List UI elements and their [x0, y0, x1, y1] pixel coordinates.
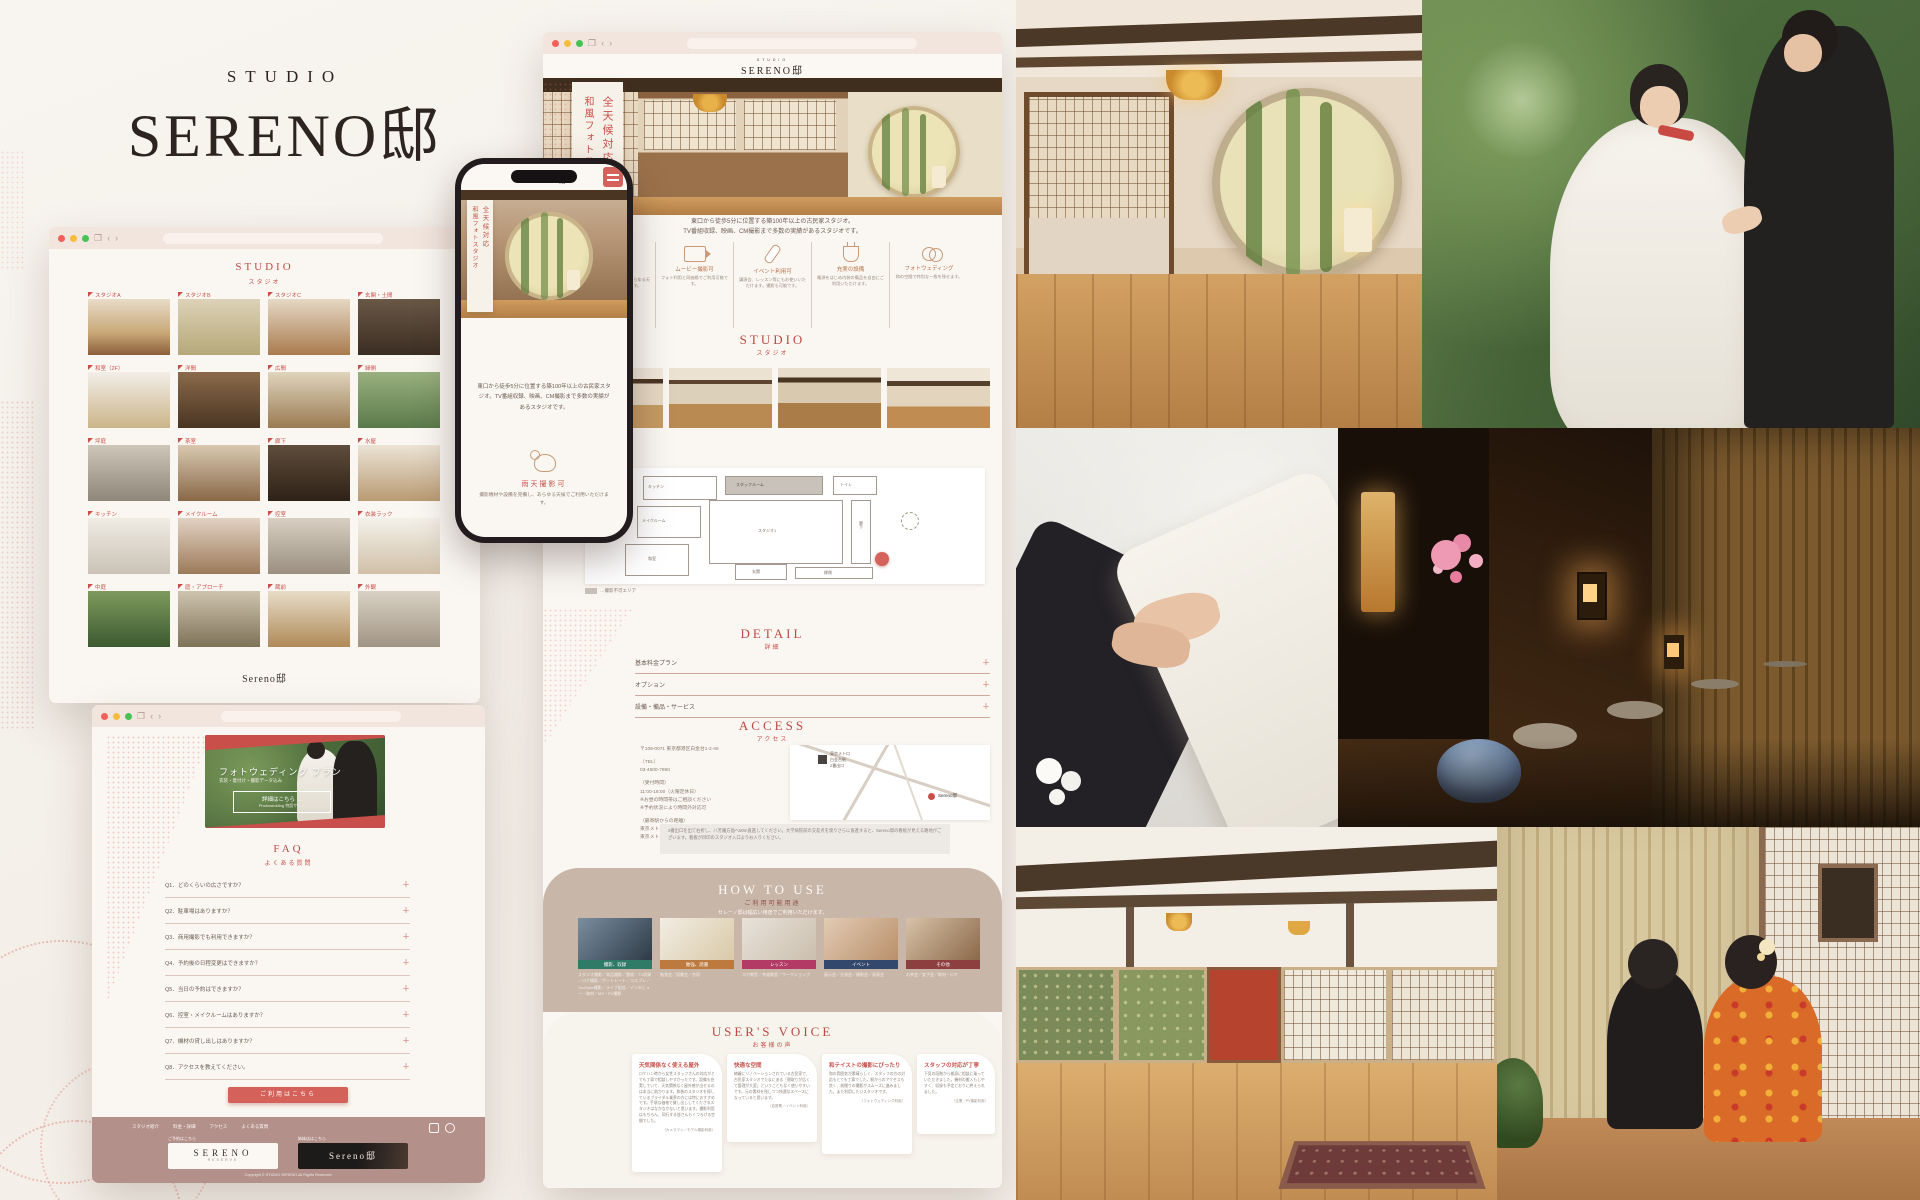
stone-lantern: [567, 270, 580, 290]
bamboo-stalk: [902, 108, 909, 196]
gallery-thumbnail[interactable]: [178, 299, 260, 355]
faq-item[interactable]: Q2．駐車場はありますか？＋: [165, 898, 410, 924]
bride-white-kimono: [1550, 118, 1768, 428]
voice-card-text: 綺麗にリノベーションされている古民家で、古民家スタジオでたまにある「間取りが広く…: [734, 1072, 810, 1101]
brand-logo-name: SERENO邸: [75, 87, 495, 174]
access-address: 〒108-0071 東京都港区白金台1-2-46: [640, 746, 785, 754]
faq-browser-chrome: ❐ ‹ ›: [92, 705, 485, 727]
gallery-thumbnail[interactable]: [268, 372, 350, 428]
studio-photo[interactable]: [669, 368, 772, 428]
use-card-photo: [906, 918, 980, 960]
studio-photo[interactable]: [778, 368, 881, 428]
gallery-thumbnail[interactable]: [178, 518, 260, 574]
faq-question: Q8．アクセスを教えてください。: [165, 1063, 249, 1071]
faq-item[interactable]: Q1．どのくらいの広さですか？＋: [165, 872, 410, 898]
how-to-use-subtitle: ご利用可能用途: [543, 898, 1002, 907]
use-card-label: レッスン: [742, 960, 816, 969]
thumb-caption: 茶室: [178, 437, 260, 445]
gallery-thumbnail[interactable]: [88, 518, 170, 574]
gallery-thumbnail[interactable]: [88, 445, 170, 501]
feature-equipment: 充実の設備 電源をはじめ内装の備品を自由にご利用いただけます。: [812, 242, 890, 328]
wall-niche: [1818, 864, 1878, 942]
site-header: STUDIO SERENO邸: [543, 54, 1002, 78]
thumb-caption: 蔵前: [268, 583, 350, 591]
bamboo-stalk: [557, 218, 563, 298]
gallery-thumbnail[interactable]: [88, 372, 170, 428]
use-card-items: スタジオ撮影／商品撮影／番組・TV収録／ロケ撮影／ポートレート／コスプレ／You…: [578, 972, 652, 998]
use-card[interactable]: イベント 展示会／交流会／撮影会／発表会: [824, 918, 898, 998]
banner-button-sub: Photowedding 特設サイト: [259, 803, 305, 809]
voice-card-title: 和テイストの撮影にぴったり: [829, 1061, 905, 1069]
footer-banner2-label: 姉妹店はこちら: [298, 1136, 326, 1142]
groom-head: [1628, 939, 1678, 989]
access-map[interactable]: 東京メトロ 白金台駅 2番出口 Sereno邸: [790, 745, 990, 820]
how-to-use-section: HOW TO USE ご利用可能用途 セレーノ邸は幅広い用途でご利用いただけます…: [543, 868, 1002, 1012]
site-header-logo[interactable]: SERENO邸: [543, 62, 1002, 77]
movie-camera-icon: [684, 246, 706, 262]
footer-link[interactable]: アクセス: [210, 1124, 228, 1130]
faq-item[interactable]: Q7．機材の貸し出しはありますか？＋: [165, 1028, 410, 1054]
gallery-thumbnail[interactable]: [178, 445, 260, 501]
access-note-box: 2番出口を出て右折し、八芳園方面へ50m直進してください。大学病院前の交差点を渡…: [660, 824, 950, 854]
decor-dot-strip: [0, 400, 34, 730]
feature-desc: 講演会、レッスン等にもお使いいただけます。撮影も可能です。: [738, 277, 807, 290]
hero-doors: [638, 92, 848, 202]
wood-floor: [1016, 274, 1422, 428]
use-card-items: お茶会／女子会／取材・ロケ: [906, 972, 980, 978]
banner-detail-button[interactable]: 詳細はこちら → Photowedding 特設サイト: [233, 791, 331, 813]
use-card-label: その他: [906, 960, 980, 969]
feature-label: イベント利用可: [738, 267, 807, 275]
access-hours-note2: ※予約状況により時間外対応可: [640, 805, 785, 813]
ceiling-beam: [1016, 15, 1422, 48]
bamboo-stalk: [541, 212, 548, 300]
phone-circle-window: [505, 212, 593, 300]
footer-link[interactable]: よくある質問: [241, 1124, 268, 1130]
sun-icon: [530, 450, 540, 460]
instagram-icon[interactable]: [429, 1123, 439, 1133]
thumb-caption: 水屋: [358, 437, 440, 445]
use-card-photo: [742, 918, 816, 960]
traffic-light-minimize[interactable]: [113, 713, 120, 720]
ceiling-beam: [1016, 50, 1422, 68]
use-cards-row: 撮影、収録 スタジオ撮影／商品撮影／番組・TV収録／ロケ撮影／ポートレート／コス…: [578, 918, 980, 998]
hero-copy-line1: 全天候対応: [599, 96, 615, 166]
expand-icon: ＋: [402, 1061, 410, 1072]
floorplan: キッチン スタッフルーム トイレ メイクルーム スタジオ1 和室 廊下 玄関 縁…: [585, 468, 985, 584]
expand-icon: ＋: [402, 983, 410, 994]
detail-accordion: 基本料金プラン＋ オプション＋ 設備・備品・サービス＋: [635, 652, 990, 718]
gallery-thumbnail[interactable]: [88, 591, 170, 647]
plan-room-label: 縁側: [824, 570, 832, 576]
thumb-caption: 縁側: [358, 364, 440, 372]
thumb-caption: 和室（2F）: [88, 364, 170, 372]
forward-icon[interactable]: ›: [115, 234, 118, 243]
bamboo-stalk: [882, 112, 890, 192]
gallery-thumbnail[interactable]: [268, 299, 350, 355]
phone-screen: STUDIO SERENO邸 全天候対応 和: [461, 164, 627, 537]
plan-room-label: 玄関: [752, 569, 760, 575]
gallery-thumbnail[interactable]: [268, 518, 350, 574]
detail-row[interactable]: 設備・備品・サービス＋: [635, 696, 990, 718]
power-plug-icon: [843, 246, 859, 262]
footer-link[interactable]: スタジオ紹介: [132, 1124, 159, 1130]
phone-copy-strip: 全天候対応 和風フォトスタジオ: [467, 200, 493, 312]
gallery-thumbnail[interactable]: [358, 299, 440, 355]
tabs-icon[interactable]: ❐: [588, 39, 596, 48]
x-social-icon[interactable]: [445, 1123, 455, 1133]
bride-orange-kimono: [1704, 976, 1822, 1142]
footer-nav: スタジオ紹介 料金・詳細 アクセス よくある質問: [132, 1124, 382, 1130]
thumb-caption: キッチン: [88, 510, 170, 518]
phone-feature-label: 雨天撮影可: [461, 479, 627, 489]
persian-rug: [1278, 1141, 1485, 1189]
photo-room-circle-window: [1016, 0, 1422, 428]
feature-label: フォトウェディング: [894, 264, 964, 272]
use-card-label: 勉強、読書: [660, 960, 734, 969]
plan-room-label: キッチン: [648, 484, 664, 490]
lantern-glow: [1667, 643, 1679, 657]
hamburger-bar: [607, 174, 619, 176]
detail-subtitle: 詳細: [543, 642, 1002, 651]
traffic-light-zoom[interactable]: [576, 40, 583, 47]
traffic-light-close[interactable]: [552, 40, 559, 47]
feature-movie: ムービー撮影可 フォト利用と同価格でご利用可能です。: [656, 242, 734, 328]
studio-photo[interactable]: [887, 368, 990, 428]
plan-room-label: スタジオ1: [758, 528, 776, 534]
bamboo-stalk: [920, 114, 926, 194]
orchid-flowers: [1431, 540, 1461, 570]
stone-lantern: [932, 166, 946, 188]
faq-item[interactable]: Q8．アクセスを教えてください。＋: [165, 1054, 410, 1080]
voice-card-credit: （カメラマン／モデル撮影利用）: [639, 1128, 715, 1133]
camera-lens: [706, 250, 711, 258]
white-flowers: [1036, 758, 1062, 784]
faq-list: Q1．どのくらいの広さですか？＋ Q2．駐車場はありますか？＋ Q3．商用撮影で…: [165, 872, 410, 1080]
gallery-thumbnail[interactable]: [178, 591, 260, 647]
plan-room-makeup: メイクルーム: [637, 506, 701, 538]
thumb-caption: 坪庭: [88, 437, 170, 445]
phone-copy-line1: 全天候対応: [479, 206, 489, 249]
detail-title: DETAIL: [543, 626, 1002, 642]
plan-room-entrance: 玄関: [735, 564, 787, 580]
faq-question: Q6．控室・メイクルームはありますか？: [165, 1011, 265, 1019]
thumb-caption: 控室: [268, 510, 350, 518]
plan-garden-tree: [901, 512, 919, 530]
design-showcase-canvas: STUDIO SERENO邸 ❐ ‹ › STUDIO スタジオ スタジオA ス…: [0, 0, 1920, 1200]
thumb-caption: スタジオC: [268, 291, 350, 299]
ring: [929, 248, 943, 262]
gallery-thumbnail[interactable]: [268, 445, 350, 501]
faq-question: Q4．予約後の日程変更はできますか？: [165, 959, 260, 967]
back-icon[interactable]: ‹: [150, 712, 153, 721]
decor-dot-strip: [0, 150, 26, 270]
brand-logo: STUDIO SERENO邸: [75, 45, 495, 185]
voice-card-title: スタッフの対応が丁寧: [924, 1061, 988, 1069]
photo-night-garden: [1338, 428, 1920, 827]
feature-event: イベント利用可 講演会、レッスン等にもお使いいただけます。撮影も可能です。: [734, 242, 812, 328]
detail-row[interactable]: 基本料金プラン＋: [635, 652, 990, 674]
faq-cta-button[interactable]: ご利用はこちら: [228, 1087, 348, 1103]
reservation-banner-name: SERENO: [168, 1148, 278, 1158]
thumb-caption: 洋間: [178, 364, 260, 372]
garden-lantern: [1664, 635, 1684, 669]
hero-circle-window: [868, 106, 960, 198]
voice-card-title: 快適な空間: [734, 1061, 810, 1069]
thumb-caption: 衣装ラック: [358, 510, 440, 518]
photo-hands-closeup: [1016, 428, 1338, 827]
reservation-banner[interactable]: SERENO RESERVE: [168, 1143, 278, 1169]
faq-browser-window: ❐ ‹ › フォトウェディング プラン 衣装・着付け・撮影データ込み 詳細はこち…: [92, 705, 485, 1183]
use-card[interactable]: 撮影、収録 スタジオ撮影／商品撮影／番組・TV収録／ロケ撮影／ポートレート／コス…: [578, 918, 652, 998]
use-card[interactable]: 勉強、読書 勉強会／読書会／合宿: [660, 918, 734, 998]
traffic-light-minimize[interactable]: [564, 40, 571, 47]
tabs-icon[interactable]: ❐: [137, 712, 145, 721]
faq-item[interactable]: Q5．当日の予約はできますか？＋: [165, 976, 410, 1002]
fusuma-green: [1116, 967, 1207, 1063]
use-card-items: 勉強会／読書会／合宿: [660, 972, 734, 978]
sister-site-banner[interactable]: Sereno邸: [298, 1143, 408, 1169]
bride-face: [1640, 86, 1680, 128]
faq-question: Q5．当日の予約はできますか？: [165, 985, 244, 993]
thumb-caption: スタジオA: [88, 291, 170, 299]
plan-room-label: 廊下: [858, 521, 864, 529]
expand-icon: ＋: [402, 1009, 410, 1020]
thumb-caption: スタジオB: [178, 291, 260, 299]
thumb-caption: 広間: [268, 364, 350, 372]
ceiling-beam: [1016, 840, 1497, 893]
access-tel[interactable]: 03-4500-7890: [640, 767, 785, 775]
gallery-thumbnail[interactable]: [178, 372, 260, 428]
tabs-icon[interactable]: ❐: [94, 234, 102, 243]
gallery-footer-logo: Sereno邸: [49, 670, 480, 685]
photo-wedding-couple: [1422, 0, 1920, 428]
microphone-icon: [763, 243, 782, 265]
expand-icon: ＋: [402, 931, 410, 942]
bamboo-stalk: [1286, 88, 1300, 278]
feature-desc: 和の空間で特別な一枚を残せます。: [894, 274, 964, 280]
faq-question: Q3．商用撮影でも利用できますか？: [165, 933, 255, 941]
gallery-browser-chrome: ❐ ‹ ›: [49, 227, 480, 249]
thumb-caption: メイクルーム: [178, 510, 260, 518]
expand-icon: ＋: [402, 879, 410, 890]
dynamic-island: [511, 170, 577, 183]
faq-question: Q1．どのくらいの広さですか？: [165, 881, 244, 889]
forward-icon[interactable]: ›: [158, 712, 161, 721]
bamboo-stalk: [1246, 98, 1262, 273]
use-card[interactable]: その他 お茶会／女子会／取材・ロケ: [906, 918, 980, 998]
feature-label: ムービー撮影可: [660, 265, 729, 273]
url-bar[interactable]: [221, 711, 401, 722]
back-icon[interactable]: ‹: [107, 234, 110, 243]
detail-row[interactable]: オプション＋: [635, 674, 990, 696]
map-here-label: Sereno邸: [938, 793, 957, 799]
phone-intro: 東口から徒歩5分に位置する築100年以上の古民家スタジオ。TV番組収録、映画、C…: [477, 382, 611, 413]
gallery-thumbnail[interactable]: [358, 372, 440, 428]
detail-row-label: 基本料金プラン: [635, 658, 677, 667]
voice-card-text: ロケハン時から女性スタッフさんの対応がとても丁寧で相談しやすかったです。設備も充…: [639, 1072, 715, 1125]
plan-room-studio: スタジオ1: [709, 500, 843, 564]
access-hours: 11:00-18:00（火曜定休日）: [640, 789, 785, 797]
faq-item[interactable]: Q3．商用撮影でも利用できますか？＋: [165, 924, 410, 950]
faq-item[interactable]: Q6．控室・メイクルームはありますか？＋: [165, 1002, 410, 1028]
access-subtitle: アクセス: [543, 734, 1002, 743]
traffic-light-close[interactable]: [101, 713, 108, 720]
banner-title: フォトウェディング プラン: [219, 765, 342, 778]
groom-black-kimono: [1744, 26, 1894, 428]
plan-room-label: トイレ: [840, 482, 852, 488]
traffic-light-minimize[interactable]: [70, 235, 77, 242]
expand-icon: ＋: [402, 1035, 410, 1046]
gallery-thumbnail[interactable]: [268, 591, 350, 647]
plug-pin: [854, 242, 855, 247]
back-icon[interactable]: ‹: [601, 39, 604, 48]
plan-marker: [875, 552, 889, 566]
how-to-use-lead: セレーノ邸は幅広い用途でご利用いただけます。: [543, 909, 1002, 916]
post: [1346, 903, 1354, 969]
expand-icon: ＋: [402, 905, 410, 916]
fusuma-row: [1016, 967, 1497, 1063]
voice-card-title: 天気関係なく使える屋外: [639, 1061, 715, 1069]
voice-card-credit: （企業／PV撮影利用）: [924, 1099, 988, 1104]
fusuma-green: [1016, 967, 1116, 1063]
plan-room-label: 和室: [648, 556, 656, 562]
ground-shadow: [1338, 739, 1920, 827]
shoji-panel: [1389, 967, 1497, 1063]
use-card-items: ヨガ教室／茶道教室／ワークショップ: [742, 972, 816, 978]
phone-hero-beam: [461, 190, 627, 200]
feature-desc: 電源をはじめ内装の備品を自由にご利用いただけます。: [816, 275, 885, 288]
lantern-glow: [1583, 584, 1597, 602]
sister-site-banner-name: Sereno邸: [298, 1143, 408, 1169]
thumb-caption: 外観: [358, 583, 440, 591]
expand-icon: ＋: [982, 701, 990, 712]
map-station-marker: [818, 755, 827, 764]
reservation-banner-sub: RESERVE: [168, 1158, 278, 1162]
url-bar[interactable]: [687, 38, 917, 49]
circle-window: [1212, 88, 1402, 278]
feature-wedding: フォトウェディング 和の空間で特別な一枚を残せます。: [890, 242, 968, 328]
thumb-caption: 玄関・土間: [358, 291, 440, 299]
groom-back-figure: [1607, 969, 1703, 1129]
expand-icon: ＋: [982, 657, 990, 668]
faq-item[interactable]: Q4．予約後の日程変更はできますか？＋: [165, 950, 410, 976]
voice-card: 天気関係なく使える屋外 ロケハン時から女性スタッフさんの対応がとても丁寧で相談し…: [632, 1054, 722, 1172]
thumb-caption: 中庭: [88, 583, 170, 591]
how-to-use-title: HOW TO USE: [543, 882, 1002, 898]
access-title: ACCESS: [543, 718, 1002, 734]
use-card[interactable]: レッスン ヨガ教室／茶道教室／ワークショップ: [742, 918, 816, 998]
access-tel-label: （TEL）: [640, 759, 785, 767]
footer-link[interactable]: 料金・詳細: [173, 1124, 196, 1130]
hero-door-lattice: [744, 100, 836, 150]
voice-card: 快適な空間 綺麗にリノベーションされている古民家で、古民家スタジオでたまにある「…: [727, 1054, 817, 1142]
traffic-light-zoom[interactable]: [125, 713, 132, 720]
traffic-light-zoom[interactable]: [82, 235, 89, 242]
groom-face: [1784, 34, 1822, 72]
plan-room-washitsu: 和室: [625, 544, 689, 576]
copyright: Copyright © STUDIO SERENO All Rights Res…: [92, 1173, 485, 1177]
plan-room-toilet: トイレ: [833, 476, 877, 495]
light-blob: [1462, 40, 1582, 160]
voice-card-credit: （自営業／イベント利用）: [734, 1104, 810, 1109]
garden-lantern: [1577, 572, 1607, 620]
gallery-thumbnail[interactable]: [358, 518, 440, 574]
faq-question: Q2．駐車場はありますか？: [165, 907, 233, 915]
faq-title: FAQ: [92, 843, 485, 855]
voice-card-text: 下見の段階から親身に相談に乗っていただきました。機材の搬入もしやすく、収録も予定…: [924, 1072, 988, 1096]
forward-icon[interactable]: ›: [609, 39, 612, 48]
plan-room-kitchen: キッチン: [643, 476, 717, 500]
faq-subtitle: よくある質問: [92, 858, 485, 867]
use-card-items: 展示会／交流会／撮影会／発表会: [824, 972, 898, 978]
users-voice-section: USER'S VOICE お客様の声 天気関係なく使える屋外 ロケハン時から女性…: [543, 1012, 1002, 1188]
legend-text: …撮影不可エリア: [600, 588, 636, 594]
use-card-photo: [578, 918, 652, 960]
traffic-light-close[interactable]: [58, 235, 65, 242]
post: [1126, 907, 1134, 967]
brand-logo-studio: STUDIO: [75, 67, 495, 87]
gallery-heading: STUDIO: [49, 261, 480, 273]
detail-row-label: オプション: [635, 680, 665, 689]
hamburger-bar: [607, 179, 619, 181]
pendant-lights: [1166, 913, 1192, 931]
ceiling-beam: [1016, 889, 1497, 910]
gallery-thumbnail[interactable]: [88, 299, 170, 355]
faq-footer: スタジオ紹介 料金・詳細 アクセス よくある質問 ご予約はこちら 姉妹店はこちら…: [92, 1117, 485, 1183]
url-bar[interactable]: [163, 233, 383, 244]
feature-label: 充実の設備: [816, 265, 885, 273]
map-exit: 2番出口: [830, 763, 844, 769]
plan-room-label: スタッフルーム: [736, 482, 764, 488]
stone-lantern: [1344, 208, 1372, 252]
floor-planks: [1016, 274, 1422, 428]
gallery-browser-window: ❐ ‹ › STUDIO スタジオ スタジオA スタジオB スタジオC 玄関・土…: [49, 227, 480, 703]
access-hours-label: （受付時間）: [640, 780, 785, 788]
phone-feature-desc: 撮影機材や設備を完備し、あらゆる天候でご利用いただけます。: [479, 492, 609, 508]
main-browser-chrome: ❐ ‹ ›: [543, 32, 1002, 54]
gallery-thumbnail[interactable]: [358, 591, 440, 647]
use-card-photo: [824, 918, 898, 960]
bride-hair: [307, 741, 325, 759]
access-hours-note1: ※お昼の時間帯はご相談ください: [640, 797, 785, 805]
wedding-rings-icon: [922, 247, 936, 261]
shoji-panel: [1281, 967, 1389, 1063]
legend-swatch: [585, 588, 597, 594]
phone-weather-icon: [534, 454, 556, 472]
thumb-caption: 庭・アプローチ: [178, 583, 260, 591]
hamburger-menu-button[interactable]: [603, 167, 623, 187]
window-glow: [1361, 492, 1395, 612]
gallery-grid: スタジオA スタジオB スタジオC 玄関・土間 和室（2F） 洋間 広間 縁側 …: [88, 291, 440, 663]
plan-room-engawa: 縁側: [795, 567, 873, 579]
photo-beam-room: [1016, 827, 1497, 1200]
use-card-label: 撮影、収録: [578, 960, 652, 969]
gallery-thumbnail[interactable]: [358, 445, 440, 501]
plan-legend: …撮影不可エリア: [585, 588, 636, 594]
photo-wedding-banner[interactable]: フォトウェディング プラン 衣装・着付け・撮影データ込み 詳細はこちら → Ph…: [205, 735, 385, 828]
voice-card: 和テイストの撮影にぴったり 和の雰囲気が素晴らしく、スタッフの方の対応もとても丁…: [822, 1054, 912, 1154]
expand-icon: ＋: [402, 957, 410, 968]
plan-room-label: メイクルーム: [642, 518, 666, 524]
faq-question: Q7．機材の貸し出しはありますか？: [165, 1037, 255, 1045]
voice-card: スタッフの対応が丁寧 下見の段階から親身に相談に乗っていただきました。機材の搬入…: [917, 1054, 995, 1134]
plug-pin: [847, 242, 848, 247]
use-card-photo: [660, 918, 734, 960]
detail-row-label: 設備・備品・サービス: [635, 702, 695, 711]
users-voice-title: USER'S VOICE: [543, 1024, 1002, 1040]
footer-banner1-label: ご予約はこちら: [168, 1136, 196, 1142]
